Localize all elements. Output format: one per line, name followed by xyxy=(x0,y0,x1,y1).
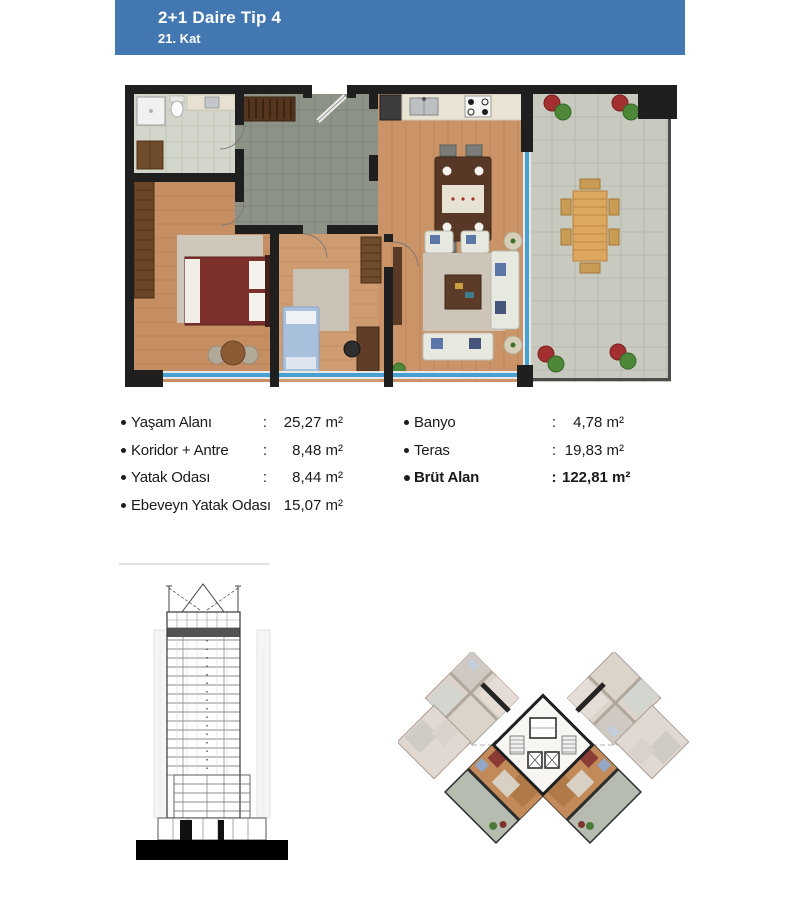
area-colon: : xyxy=(546,442,562,459)
floor-key-plan xyxy=(398,652,690,883)
area-value: 4,78 m² xyxy=(562,414,624,431)
area-label: Yaşam Alanı xyxy=(131,414,257,431)
area-row: Banyo : 4,78 m² xyxy=(398,409,624,437)
area-label: Ebeveyn Yatak Odası xyxy=(131,497,257,514)
bullet-icon xyxy=(404,448,409,453)
highlighted-floor-band xyxy=(167,628,240,637)
stairs xyxy=(510,736,524,754)
stairs xyxy=(562,736,576,754)
podium xyxy=(158,818,266,840)
shower xyxy=(137,97,165,125)
area-value: 19,83 m² xyxy=(562,442,624,459)
area-value: 8,44 m² xyxy=(273,469,343,486)
area-value: 122,81 m² xyxy=(562,469,624,486)
tower-crown xyxy=(166,584,241,628)
tv-console xyxy=(393,247,402,325)
area-list-right: Banyo : 4,78 m² Teras : 19,83 m² Brüt Al… xyxy=(398,409,624,492)
bullet-icon xyxy=(404,420,409,425)
header-band: 2+1 Daire Tip 4 21. Kat xyxy=(115,0,685,55)
bathroom-counter xyxy=(187,95,235,110)
apartment-floor-plan xyxy=(125,85,677,400)
area-row: Yatak Odası : 8,44 m² xyxy=(115,464,343,492)
area-colon: : xyxy=(257,497,273,514)
area-colon: : xyxy=(546,414,562,431)
area-label: Teras xyxy=(414,442,546,459)
bookshelf xyxy=(361,237,381,283)
coffee-table xyxy=(445,275,481,309)
section-divider xyxy=(119,563,269,565)
bullet-icon xyxy=(404,475,410,481)
bullet-icon xyxy=(121,475,126,480)
area-colon: : xyxy=(257,414,273,431)
key-plan-drawing xyxy=(398,652,690,878)
sofa xyxy=(491,251,519,329)
toilet xyxy=(170,96,184,117)
page-title: 2+1 Daire Tip 4 xyxy=(158,8,685,28)
floor-label: 21. Kat xyxy=(158,31,685,46)
area-label: Yatak Odası xyxy=(131,469,257,486)
area-value: 15,07 m² xyxy=(273,497,343,514)
area-label: Koridor + Antre xyxy=(131,442,257,459)
bullet-icon xyxy=(121,420,126,425)
area-colon: : xyxy=(257,442,273,459)
tower-lower-floors xyxy=(174,775,250,818)
bullet-icon xyxy=(121,448,126,453)
building-elevation xyxy=(128,572,296,869)
area-label: Banyo xyxy=(414,414,546,431)
fridge xyxy=(380,95,404,120)
area-value: 25,27 m² xyxy=(273,414,343,431)
area-row-total: Brüt Alan : 122,81 m² xyxy=(398,464,624,492)
area-list-left: Yaşam Alanı : 25,27 m² Koridor + Antre :… xyxy=(115,409,343,519)
elevation-drawing xyxy=(128,572,296,864)
floor-plan-drawing xyxy=(125,85,677,395)
bathroom-cabinet xyxy=(137,141,163,169)
brochure-page: 2+1 Daire Tip 4 21. Kat xyxy=(0,0,800,900)
coat-rack xyxy=(243,97,295,121)
area-row: Koridor + Antre : 8,48 m² xyxy=(115,437,343,465)
area-row: Teras : 19,83 m² xyxy=(398,437,624,465)
kitchen-counter xyxy=(402,94,523,120)
bullet-icon xyxy=(121,503,126,508)
ground-line xyxy=(136,840,288,860)
area-row: Ebeveyn Yatak Odası : 15,07 m² xyxy=(115,492,343,520)
area-value: 8,48 m² xyxy=(273,442,343,459)
area-colon: : xyxy=(257,469,273,486)
area-row: Yaşam Alanı : 25,27 m² xyxy=(115,409,343,437)
area-label: Brüt Alan xyxy=(414,469,546,486)
area-colon: : xyxy=(546,469,562,486)
